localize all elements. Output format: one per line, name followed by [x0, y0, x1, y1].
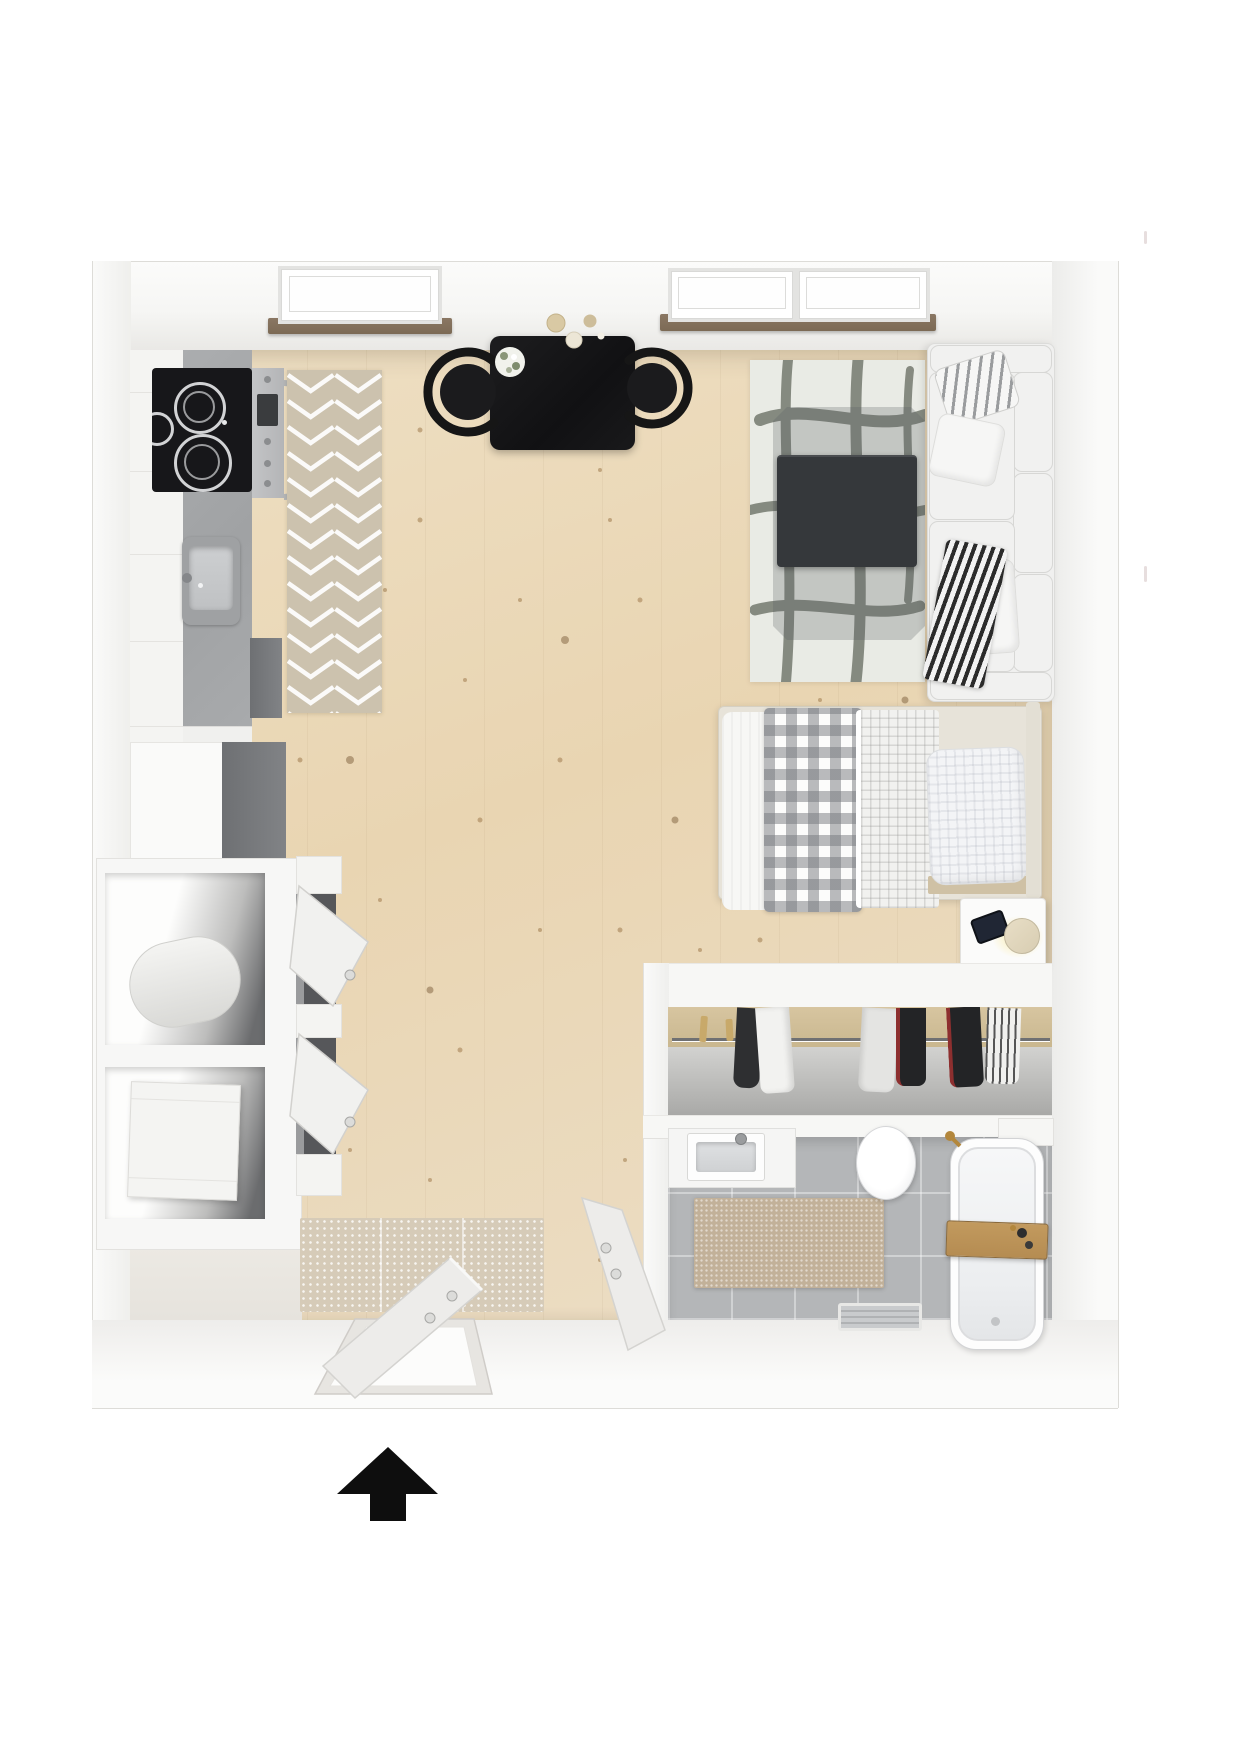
sofa-back-cushion [1013, 473, 1053, 573]
kitchen-counter-end [183, 726, 252, 743]
refrigerator [130, 742, 224, 860]
cabinet-seam [130, 726, 183, 727]
sink-basin [189, 546, 233, 610]
wall-right [1052, 261, 1119, 1408]
kitchen-runner-rug [287, 370, 382, 713]
garment-black-red [946, 1007, 984, 1088]
coffee-table [777, 455, 917, 567]
stove-knob [264, 376, 271, 383]
skylight-living-right [796, 268, 930, 322]
stove-knob [264, 460, 271, 467]
shoe-cabinet-bottom-cap [296, 1154, 342, 1196]
garment-striped [985, 1007, 1022, 1084]
sofa-pillow-white [927, 412, 1007, 489]
burner-ring-inner [184, 444, 220, 480]
stove-knob [264, 438, 271, 445]
bathroom-vanity [668, 1128, 796, 1188]
toilet [856, 1126, 916, 1200]
wardrobe-top-frame [643, 963, 1052, 1009]
sofa-back-cushion [1013, 372, 1053, 472]
garment-white-shirt [755, 1007, 795, 1094]
sink-faucet [182, 573, 192, 583]
table-lamp [1004, 918, 1040, 954]
entry-doormat [300, 1218, 544, 1312]
box-lid-seam [131, 1098, 239, 1103]
bed-pillow [926, 746, 1029, 885]
box-lid-seam [129, 1177, 237, 1182]
burner-ring-inner [183, 391, 215, 423]
bed-folded-duvet [856, 710, 939, 908]
drain-slat [841, 1310, 919, 1312]
skylight-pane [806, 277, 920, 309]
refrigerator-side-panel [222, 742, 286, 858]
stray-mark [1144, 231, 1147, 244]
floor-plan-canvas [0, 0, 1240, 1754]
vanity-basin-inner [696, 1142, 756, 1172]
wooden-hanger [725, 1019, 733, 1041]
bed-headboard [1026, 702, 1040, 898]
vanity-basin [687, 1133, 765, 1181]
skylight-pane [678, 277, 786, 309]
wardrobe-bathroom-left-wall [643, 963, 669, 1320]
drain-slat [841, 1322, 919, 1324]
storage-shelf-unit [96, 858, 302, 1250]
counter-side-panel [250, 638, 282, 718]
sofa-back-cushion [1013, 574, 1053, 672]
dining-table [490, 336, 635, 450]
floor-drain-tray [838, 1303, 922, 1331]
stove-cooktop [152, 368, 252, 492]
runner-rug-chevron-pattern [287, 370, 382, 713]
sink-drain-dot [198, 583, 203, 588]
vanity-faucet [735, 1133, 747, 1145]
burner-dot [222, 420, 227, 425]
shoe-cabinet-top-cap [296, 856, 342, 894]
shoe-cabinet-opening [296, 1036, 336, 1154]
skylight-kitchen [278, 266, 442, 324]
stray-mark [1144, 566, 1147, 582]
bed-gingham-duvet [764, 708, 862, 912]
doormat-seam [462, 1218, 464, 1312]
skylight-pane [289, 276, 431, 312]
entrance-arrow-icon [337, 1447, 438, 1521]
garment-gray-jacket [858, 1007, 898, 1093]
skylight-living-left [668, 268, 796, 322]
cabinet-seam [130, 641, 183, 642]
shoe-cabinet-opening [296, 892, 336, 1004]
drain-slat [841, 1316, 919, 1318]
doormat-seam [380, 1218, 382, 1312]
cabinet-seam [130, 554, 183, 555]
bathtub-wooden-tray [945, 1220, 1048, 1260]
stove-knob [264, 480, 271, 487]
garment-black-red [896, 1008, 926, 1086]
stored-cylinder [121, 928, 248, 1035]
wardrobe-interior [668, 1007, 1052, 1115]
stove-control-panel [252, 368, 284, 498]
storage-cube-bottom [105, 1067, 265, 1219]
burner-ring-small [152, 412, 174, 446]
entry-floor-shadow [130, 1248, 302, 1320]
bath-mat [694, 1198, 884, 1288]
bathtub-drain [991, 1317, 1000, 1326]
shoe-cabinet-divider [296, 1004, 342, 1038]
stored-white-box [127, 1081, 241, 1201]
kitchen-sink [182, 537, 240, 625]
stove-display [257, 394, 278, 426]
storage-cube-top [105, 873, 265, 1045]
